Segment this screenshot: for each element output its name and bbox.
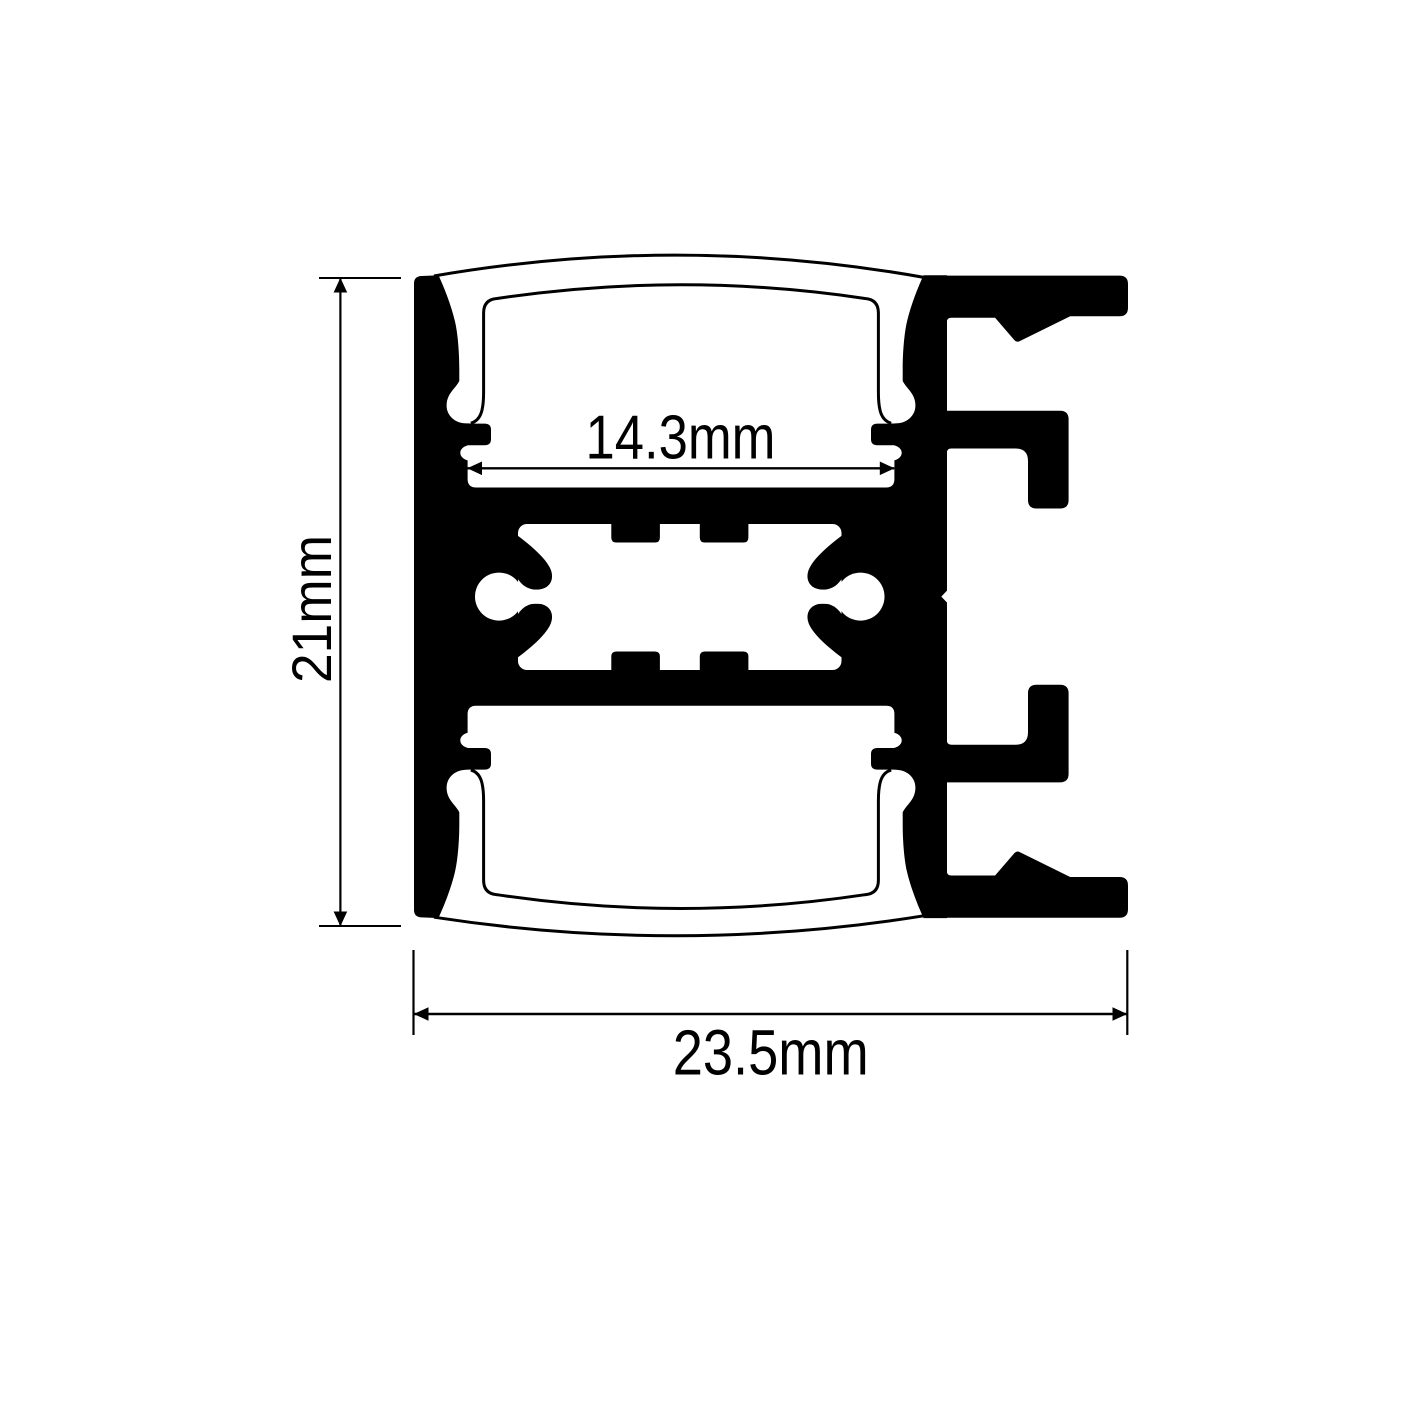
svg-text:21mm: 21mm (280, 535, 343, 683)
svg-text:14.3mm: 14.3mm (586, 404, 776, 473)
svg-text:23.5mm: 23.5mm (673, 1017, 869, 1089)
